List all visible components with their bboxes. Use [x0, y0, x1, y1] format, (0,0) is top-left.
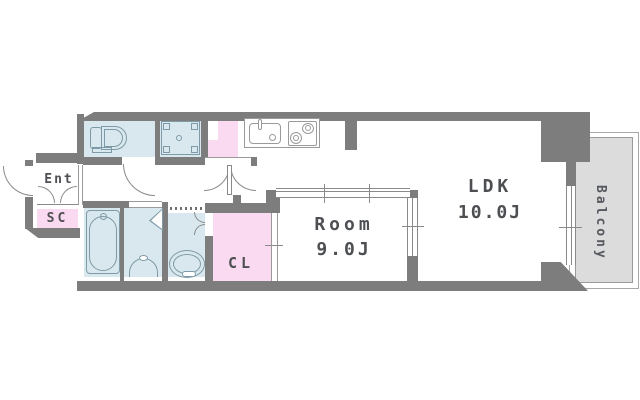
- entrance-step: [78, 165, 83, 205]
- room-ldk-divider: [407, 198, 418, 256]
- partition-tick-2: [369, 184, 370, 203]
- stove-burner-1-inner: [305, 125, 311, 131]
- closet-front-opening: [271, 213, 278, 281]
- pan-corner-tr: [191, 123, 198, 130]
- toilet-door-swing: [123, 164, 155, 196]
- wall-bottom: [77, 281, 566, 291]
- dashed-line: [170, 207, 203, 210]
- divider-track-line: [412, 198, 413, 256]
- wall-divider-bottom-block: [407, 255, 418, 282]
- storage-door-leaf: [227, 165, 232, 195]
- wall-toilet-bottom: [83, 157, 123, 165]
- room-area-label: 9.0J: [298, 239, 390, 260]
- wall-washer-bottom: [155, 157, 205, 165]
- storage-floor-2: [208, 140, 238, 158]
- kitchen-faucet: [258, 119, 262, 130]
- window-tick: [559, 227, 582, 228]
- pan-drain: [176, 135, 182, 141]
- divider-tick: [402, 226, 424, 227]
- wall-sc-bottom: [25, 228, 80, 238]
- sink-drain: [269, 134, 276, 141]
- wall-above-ent: [36, 153, 80, 163]
- sc-door-left-swing: [38, 186, 55, 203]
- closet-opening-tick: [265, 245, 283, 246]
- bathtub-drain: [100, 213, 107, 220]
- sc-door-right-swing: [60, 186, 77, 203]
- toilet-paper-holder: [92, 147, 112, 153]
- ldk-label: LDK: [446, 176, 534, 197]
- wall-kitchen-stub: [345, 119, 357, 150]
- washroom-entry: [129, 201, 162, 208]
- partition-tick-1: [324, 184, 325, 203]
- wall-right-strip: [566, 160, 576, 186]
- vanity-faucet: [182, 271, 196, 277]
- pan-corner-tl: [163, 123, 170, 130]
- floor-plan: Balcony: [0, 0, 640, 400]
- entrance-door-swing: [3, 166, 33, 196]
- stove-burner-2-inner: [293, 135, 299, 141]
- storage-door-right-swing: [230, 165, 256, 191]
- powder-door-gap: [205, 213, 213, 236]
- wall-washer-storage-sep: [201, 117, 208, 158]
- ldk-area-label: 10.0J: [446, 202, 534, 223]
- sc-top-line: [37, 204, 78, 205]
- wall-pillar-topright: [541, 112, 590, 162]
- balcony-window: [566, 186, 576, 265]
- room-top-partition: [276, 188, 410, 198]
- wall-bath-washroom-sep: [120, 207, 124, 281]
- storage-floor: [218, 119, 238, 141]
- washbasin-faucet: [139, 255, 148, 261]
- closet-label: CL: [213, 254, 269, 272]
- shoe-closet-label: SC: [37, 211, 78, 226]
- entrance-label: Ent: [40, 172, 78, 187]
- balcony-label: Balcony: [593, 163, 608, 283]
- partition-track-line: [276, 191, 410, 192]
- wall-top: [78, 112, 565, 121]
- toilet-bowl-rim: [104, 129, 123, 147]
- kitchen-sink: [249, 123, 281, 144]
- pan-corner-bl: [163, 146, 170, 153]
- storage-door-gap: [205, 157, 251, 165]
- window-center-line: [571, 186, 572, 265]
- room-label: Room: [298, 214, 390, 235]
- pan-corner-br: [191, 146, 198, 153]
- bathtub-inner: [89, 216, 117, 271]
